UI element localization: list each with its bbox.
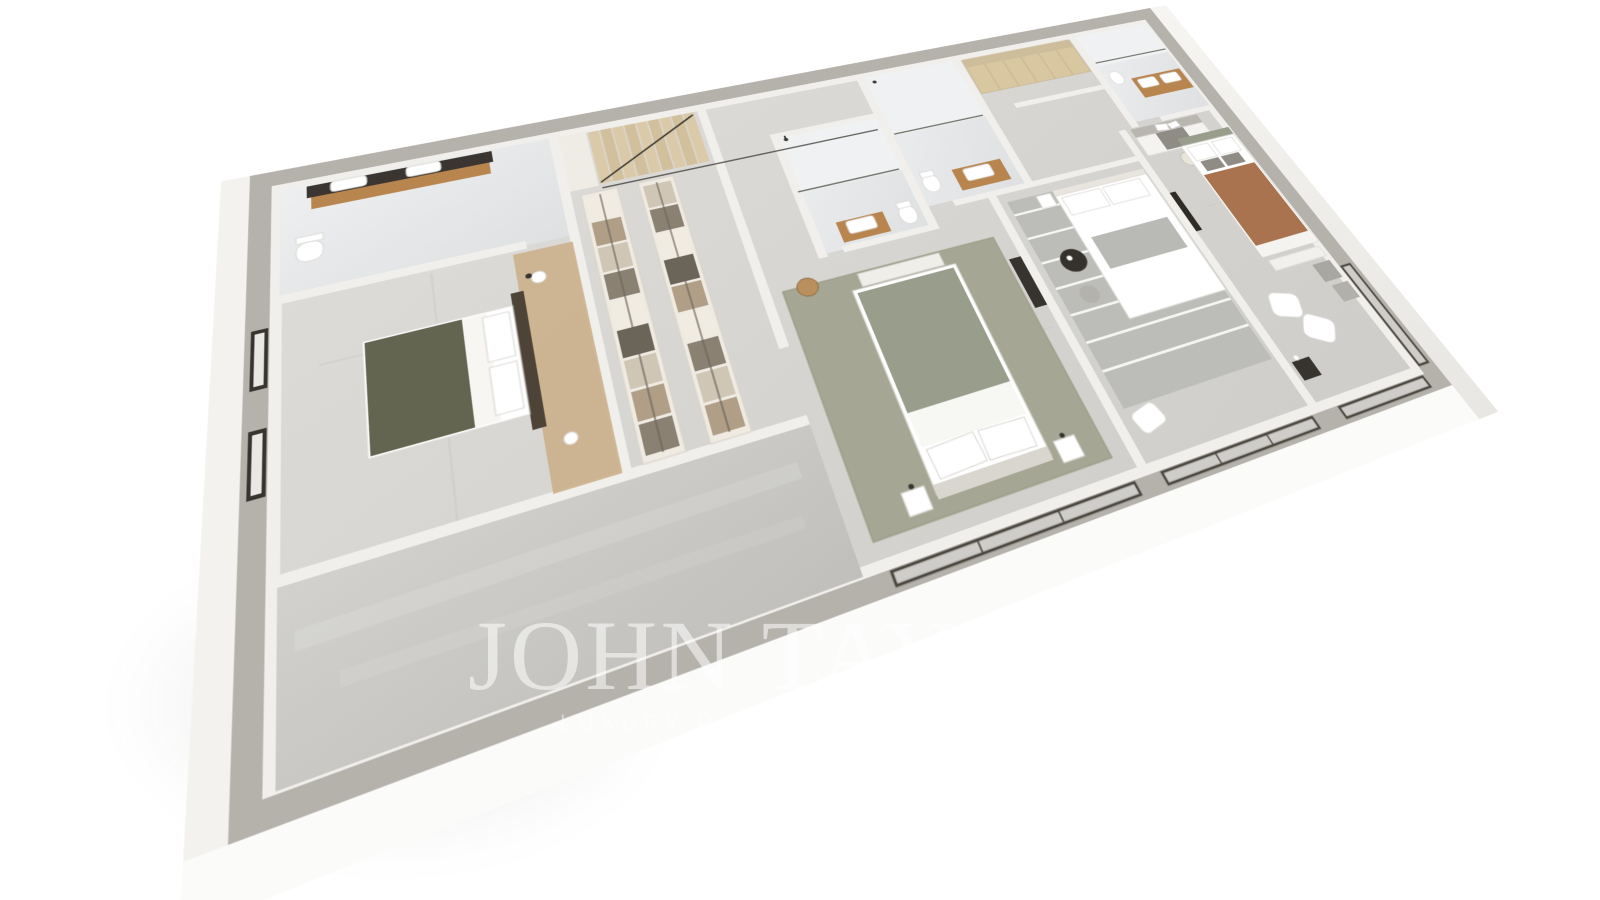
window-glass [253,332,264,387]
window-glass [250,433,262,496]
plan-3d [228,8,1452,845]
floorplan-render: JOHN TAY LUXURY R [0,0,1600,900]
plan-canvas [109,0,1551,900]
